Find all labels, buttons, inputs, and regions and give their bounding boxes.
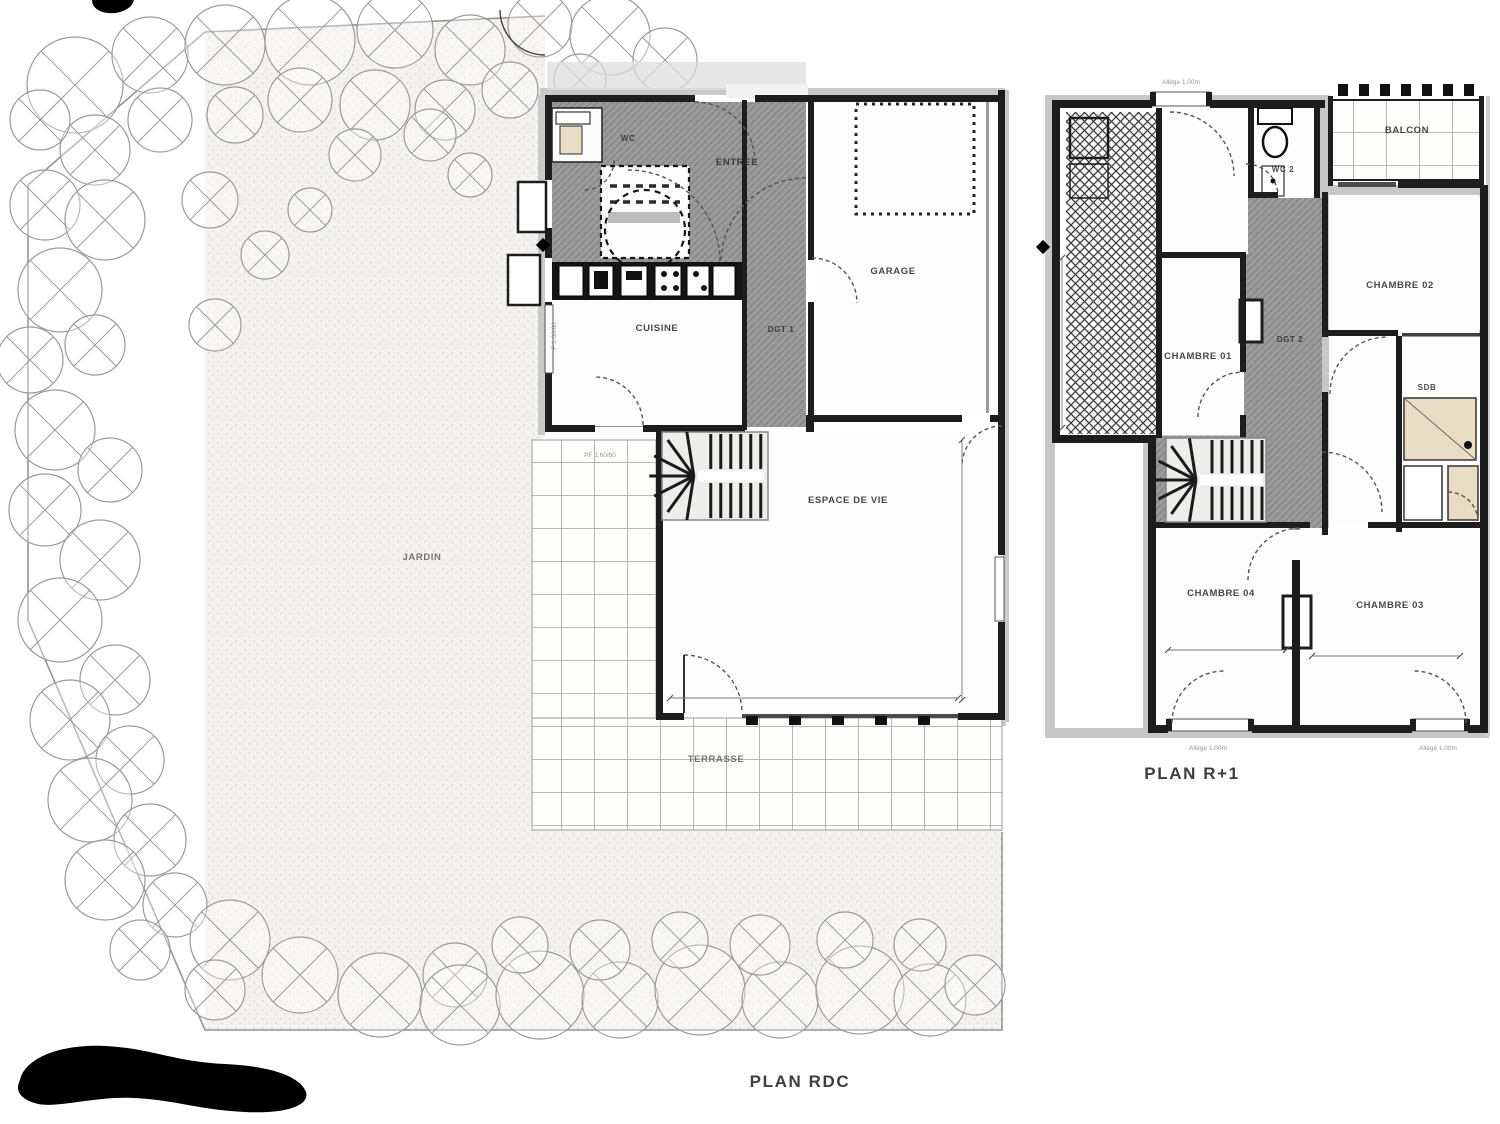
staircase-rdc [649,432,768,520]
floorplan-drawing: JARDIN [0,0,1500,1124]
room-label-chambre03: CHAMBRE 03 [1356,600,1424,611]
room-label-wc2: WC 2 [1272,165,1294,174]
room-label-chambre01: CHAMBRE 01 [1164,351,1232,362]
plan-title-rdc: PLAN RDC [750,1072,851,1091]
room-label-cuisine: CUISINE [636,323,679,334]
room-label-sdb: SDB [1418,383,1437,392]
room-label-balcon: BALCON [1385,125,1429,136]
room-label-dgt2: DGT 2 [1277,335,1304,344]
ink-blob-bottom [18,1046,306,1112]
entry-dashed-fixture [601,166,689,270]
plan-title-r1: PLAN R+1 [1144,764,1239,783]
ink-mark-top [92,0,134,13]
sdb-fixtures [1404,398,1478,520]
note-stair-rdc: PF 1.60/60 [584,452,616,459]
room-label-jardin: JARDIN [403,552,442,563]
room-label-chambre04: CHAMBRE 04 [1187,588,1255,599]
room-label-wc: WC [621,134,636,143]
terrace-side [532,440,656,718]
note-sill-ch03: Allège 1.00m [1419,745,1457,752]
balcony-railing-ticks [1338,84,1474,96]
staircase-r1 [1154,438,1266,522]
kitchen-counter [552,262,742,300]
note-window-left: F 1.00/60 [551,322,558,350]
room-label-garage: GARAGE [870,266,915,277]
kitchen-room [552,300,742,426]
room-label-espace-de-vie: ESPACE DE VIE [808,495,888,506]
room-label-dgt1: DGT 1 [768,325,795,334]
room-label-terrasse: TERRASSE [688,754,745,765]
plan-r1: WC 2 BALCON CHAMBRE 02 CHAMBRE 01 DGT 2 … [1036,79,1490,783]
room-label-entree: ENTREE [716,157,758,168]
note-sill-ch04: Allège 1.00m [1189,745,1227,752]
garage-room [814,98,998,415]
room-label-chambre02: CHAMBRE 02 [1366,280,1434,291]
crosshatch-zone [1066,112,1158,434]
balcony [1332,100,1480,180]
terrace-main [532,718,1002,830]
note-sill-top: Allège 1.00m [1162,79,1200,86]
